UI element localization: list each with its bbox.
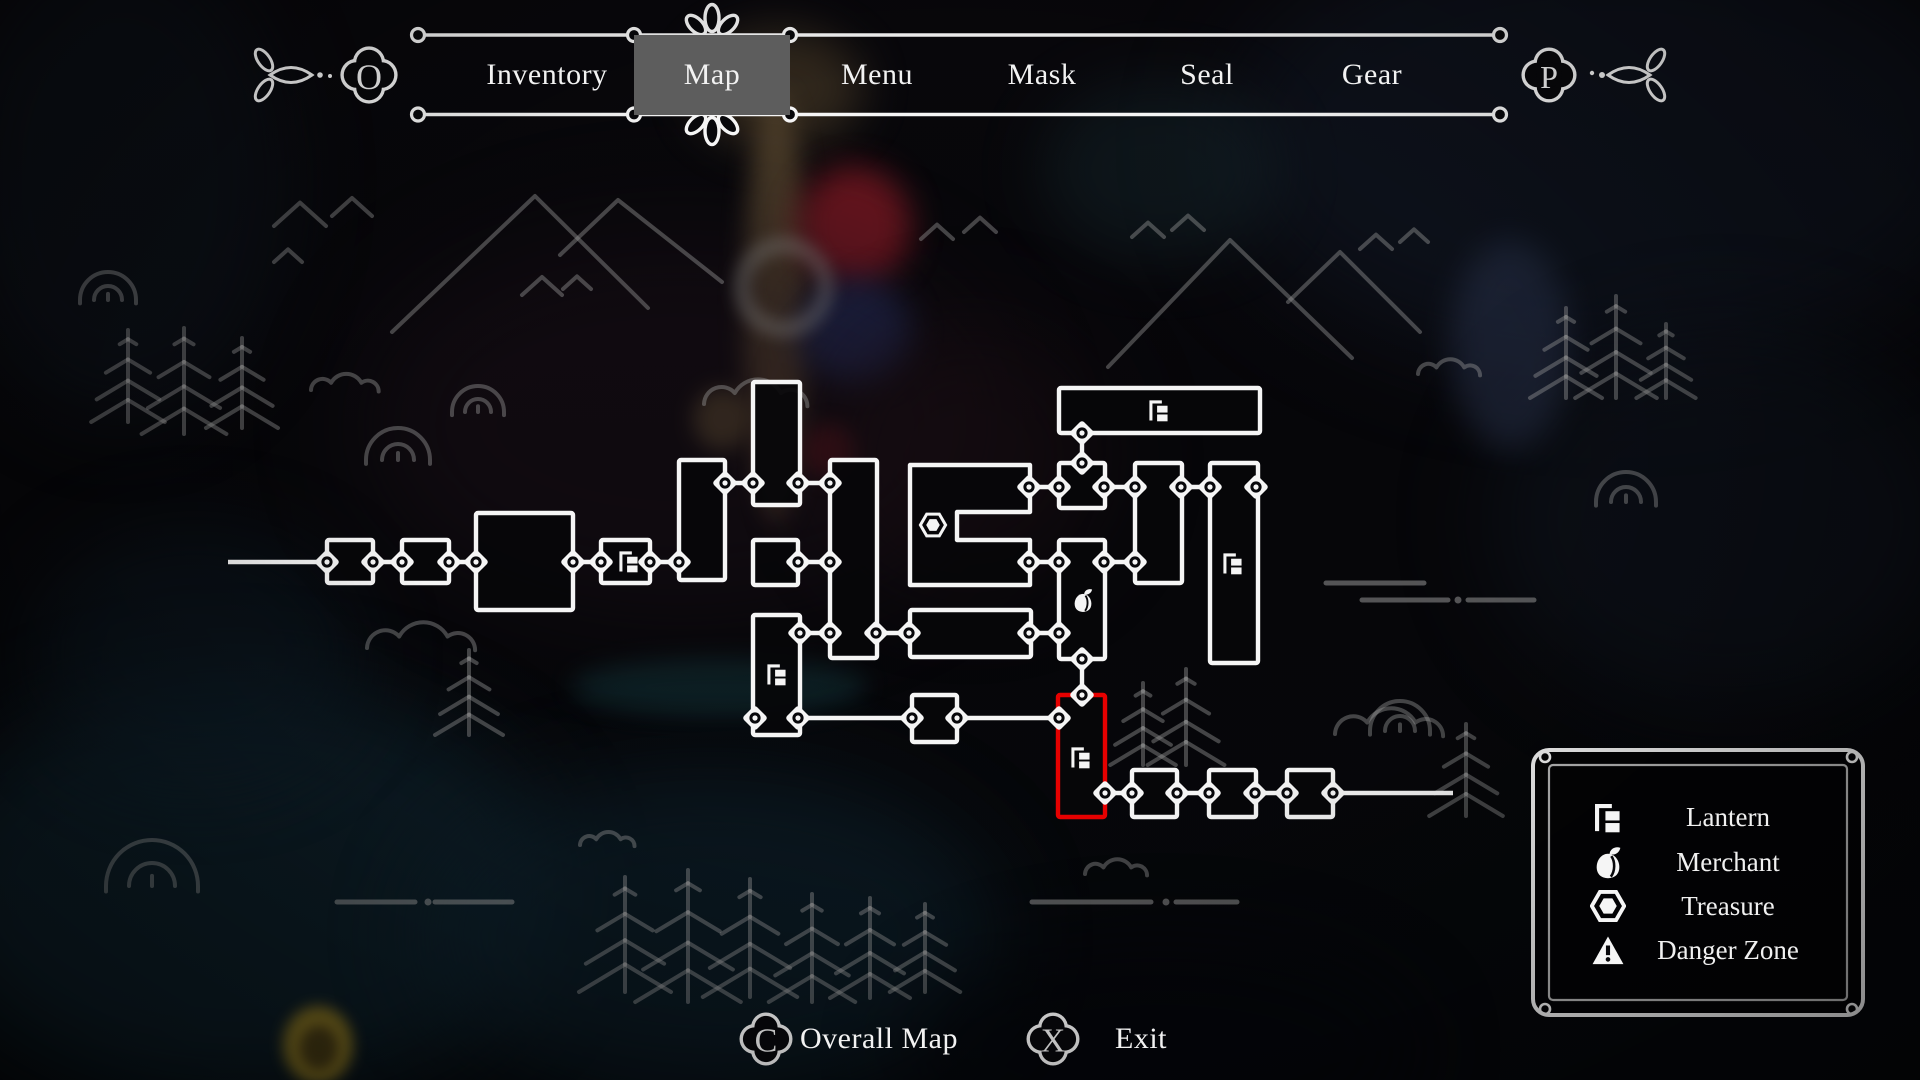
lantern-icon [1597,806,1620,832]
map-room-3 [476,513,573,610]
tab-inventory[interactable]: Inventory [469,35,625,115]
flourish-dot [1590,71,1594,75]
map-room-16 [910,610,1031,657]
overall-map-key-label: C [755,1023,778,1060]
map-tab-ornament-top [683,5,741,39]
shoulder-button-o[interactable]: O [340,46,397,103]
flourish-dot [317,72,323,78]
flourish-dot [328,74,332,78]
legend-item-merchant: Merchant [1533,840,1863,884]
legend-label: Lantern [1633,795,1823,839]
exit-label: Exit [1115,1018,1167,1060]
shoulder-button-o-label: O [356,57,382,97]
world-map [228,382,1453,817]
merchant-icon [1597,847,1621,878]
overall-map-label: Overall Map [800,1018,958,1060]
merchant-icon [1590,844,1626,880]
right-flourish-icon [1608,46,1668,103]
legend-item-treasure: Treasure [1533,884,1863,928]
tab-mask[interactable]: Mask [964,35,1120,115]
legend-label: Treasure [1633,884,1823,928]
tab-seal[interactable]: Seal [1129,35,1285,115]
treasure-icon [1592,892,1624,920]
danger-icon [1593,937,1624,965]
danger-icon [1590,932,1626,968]
left-flourish-icon [252,46,312,103]
legend-item-danger-zone: Danger Zone [1533,928,1863,972]
shoulder-button-p[interactable]: P [1521,47,1576,102]
map-screen: OPCX InventoryMapMenuMaskSealGear Lanter… [0,0,1920,1080]
tab-map[interactable]: Map [634,35,790,115]
legend-panel: LanternMerchantTreasureDanger Zone [1533,750,1863,1015]
legend-label: Danger Zone [1633,928,1823,972]
legend-label: Merchant [1633,840,1823,884]
tab-menu[interactable]: Menu [799,35,955,115]
lantern-icon [1590,799,1626,835]
shoulder-button-p-label: P [1540,59,1558,95]
exit-key-label: X [1041,1023,1066,1060]
overall-map-button[interactable]: C [740,1013,793,1066]
exit-button[interactable]: X [1027,1013,1080,1066]
flourish-dot [1599,72,1605,78]
treasure-icon [1590,888,1626,924]
legend-item-lantern: Lantern [1533,795,1863,839]
tab-gear[interactable]: Gear [1294,35,1450,115]
